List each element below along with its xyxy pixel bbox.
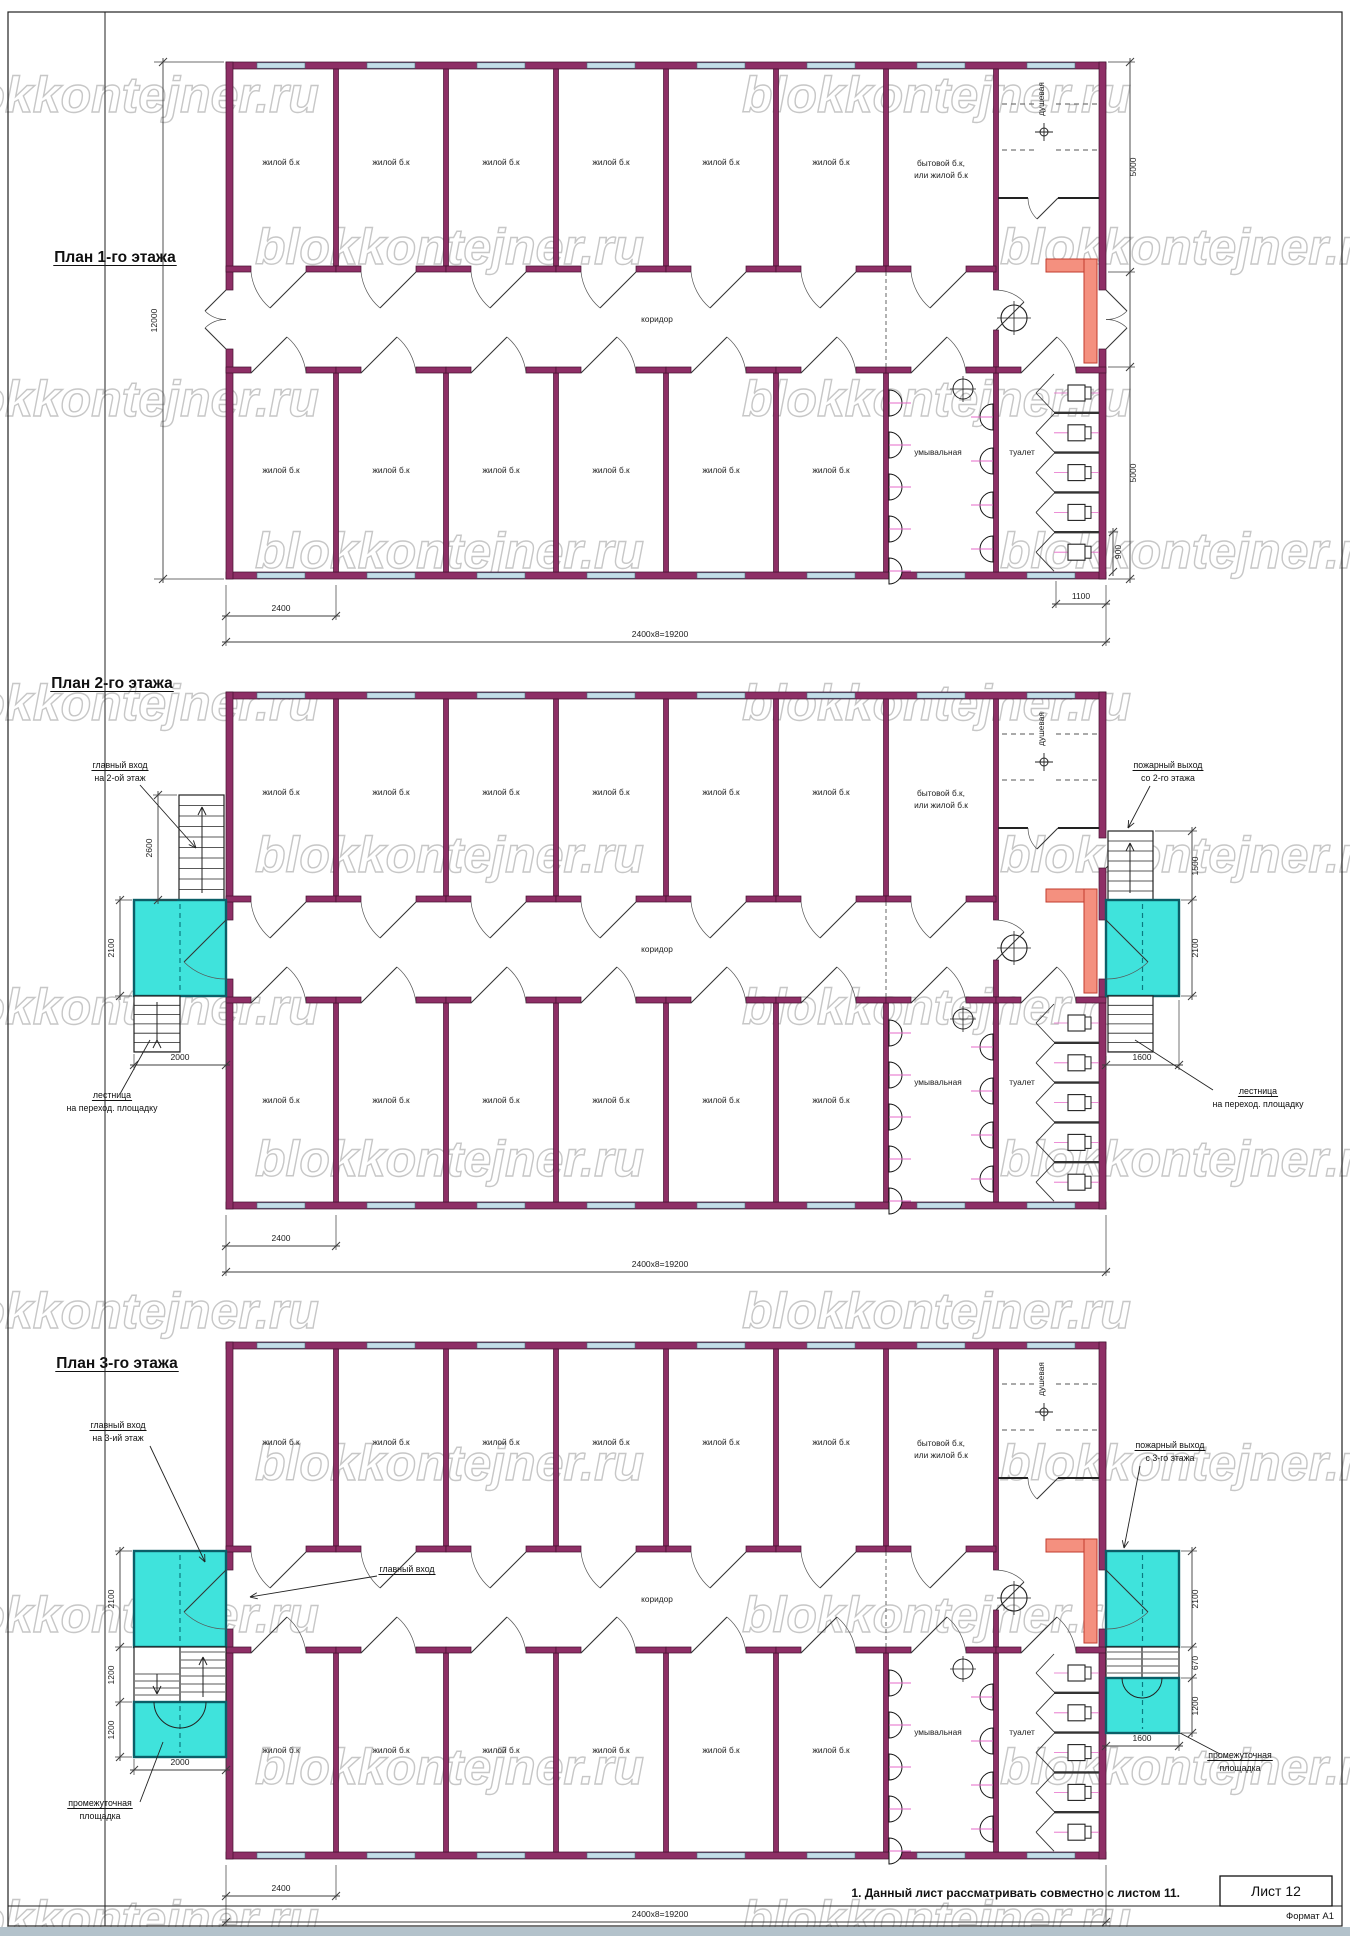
window bbox=[697, 1203, 745, 1208]
window bbox=[697, 573, 745, 578]
wall bbox=[226, 979, 233, 1209]
wall bbox=[226, 367, 251, 373]
dim-label: 2100 bbox=[1190, 938, 1200, 957]
room-label-residential: жилой б.к bbox=[482, 787, 520, 797]
wall bbox=[556, 997, 581, 1003]
toilet-bowl bbox=[1068, 1665, 1085, 1681]
wall bbox=[334, 699, 339, 896]
annotation-label: площадка bbox=[79, 1811, 120, 1821]
wall bbox=[226, 266, 251, 272]
dim-label: 2400 bbox=[272, 1233, 291, 1243]
wall bbox=[774, 1349, 779, 1546]
wall bbox=[776, 997, 801, 1003]
dim-label: 5000 bbox=[1128, 463, 1138, 482]
wall bbox=[746, 896, 776, 902]
wall bbox=[444, 373, 449, 572]
dim-label: 2400x8=19200 bbox=[632, 629, 689, 639]
wall bbox=[636, 997, 666, 1003]
wall bbox=[446, 266, 471, 272]
room-label-utility: бытовой б.к, bbox=[917, 158, 965, 168]
room-label-utility: или жилой б.к bbox=[914, 1450, 968, 1460]
room-label-residential: жилой б.к bbox=[262, 787, 300, 797]
wall bbox=[1099, 1629, 1106, 1859]
dim-label: 2600 bbox=[144, 838, 154, 857]
watermark-text: blokkontejner.ru bbox=[742, 1587, 1131, 1643]
wall bbox=[664, 373, 669, 572]
annotation-label: на 3-ий этаж bbox=[92, 1433, 143, 1443]
window bbox=[807, 1343, 855, 1348]
wall bbox=[416, 997, 446, 1003]
wall bbox=[1099, 349, 1106, 579]
window bbox=[1027, 693, 1075, 698]
wall bbox=[666, 896, 691, 902]
window bbox=[477, 1203, 525, 1208]
window bbox=[257, 1853, 305, 1858]
dim-label: 2000 bbox=[171, 1052, 190, 1062]
window bbox=[477, 63, 525, 68]
toilet-bowl bbox=[1068, 1095, 1085, 1111]
toilet-tank bbox=[1085, 1017, 1091, 1029]
wall bbox=[886, 896, 911, 902]
washroom-label: умывальная bbox=[914, 1077, 962, 1087]
wall bbox=[774, 1653, 779, 1852]
toilet-bowl bbox=[1068, 1015, 1085, 1031]
corridor-label: коридор bbox=[641, 314, 673, 324]
wall bbox=[856, 896, 886, 902]
room-label-residential: жилой б.к bbox=[372, 1745, 410, 1755]
wall bbox=[664, 1003, 669, 1202]
wall bbox=[994, 373, 999, 572]
shower-label: душевая bbox=[1036, 712, 1046, 746]
washroom-label: умывальная bbox=[914, 447, 962, 457]
toilet-tank bbox=[1085, 1136, 1091, 1148]
window bbox=[367, 693, 415, 698]
wall bbox=[444, 1653, 449, 1852]
wall bbox=[886, 367, 911, 373]
room-label-residential: жилой б.к bbox=[702, 787, 740, 797]
dim-label: 1200 bbox=[1190, 1696, 1200, 1715]
wall bbox=[776, 1546, 801, 1552]
watermark-text: blokkontejner.ru bbox=[255, 1435, 644, 1491]
window bbox=[257, 63, 305, 68]
window bbox=[697, 63, 745, 68]
sheet-number: Лист 12 bbox=[1251, 1883, 1301, 1899]
window bbox=[587, 1203, 635, 1208]
wall bbox=[776, 266, 801, 272]
toilet-bowl bbox=[1068, 1745, 1085, 1761]
heater bbox=[1084, 259, 1097, 363]
room-label-residential: жилой б.к bbox=[372, 1095, 410, 1105]
wall bbox=[856, 367, 886, 373]
wall bbox=[554, 373, 559, 572]
corridor-label: коридор bbox=[641, 944, 673, 954]
wall bbox=[776, 1647, 801, 1653]
room-label-residential: жилой б.к bbox=[482, 1437, 520, 1447]
window bbox=[477, 1853, 525, 1858]
window bbox=[587, 1343, 635, 1348]
wall bbox=[556, 367, 581, 373]
room-label-residential: жилой б.к bbox=[592, 1745, 630, 1755]
wall bbox=[446, 1647, 471, 1653]
wall bbox=[226, 1342, 1106, 1349]
wall bbox=[886, 1647, 911, 1653]
wall bbox=[1099, 692, 1106, 838]
room-label-residential: жилой б.к bbox=[812, 1437, 850, 1447]
watermark-text: blokkontejner.ru bbox=[0, 371, 319, 427]
toilet-tank bbox=[1085, 1786, 1091, 1798]
wall bbox=[416, 367, 446, 373]
watermark-text: blokkontejner.ru bbox=[255, 827, 644, 883]
wall bbox=[774, 699, 779, 896]
room-label-residential: жилой б.к bbox=[262, 157, 300, 167]
wall bbox=[336, 1546, 361, 1552]
toilet-bowl bbox=[1068, 1055, 1085, 1071]
dim-label: 900 bbox=[1113, 545, 1123, 559]
wall bbox=[856, 1647, 886, 1653]
wall bbox=[226, 349, 233, 579]
watermark-text: blokkontejner.ru bbox=[742, 675, 1131, 731]
wall bbox=[666, 266, 691, 272]
room-label-residential: жилой б.к bbox=[262, 465, 300, 475]
annotation-label: лестница bbox=[93, 1090, 131, 1100]
window bbox=[697, 1853, 745, 1858]
room-label-residential: жилой б.к bbox=[372, 787, 410, 797]
window bbox=[1027, 1203, 1075, 1208]
room-label-residential: жилой б.к bbox=[592, 1095, 630, 1105]
wall bbox=[884, 373, 889, 572]
wall bbox=[636, 266, 666, 272]
wall bbox=[556, 896, 581, 902]
window bbox=[257, 693, 305, 698]
window bbox=[367, 63, 415, 68]
window bbox=[367, 1203, 415, 1208]
wall bbox=[636, 1647, 666, 1653]
room-label-residential: жилой б.к bbox=[592, 157, 630, 167]
toilet-bowl bbox=[1068, 544, 1085, 560]
wall bbox=[446, 367, 471, 373]
drawing-sheet: blokkontejner.rublokkontejner.rublokkont… bbox=[0, 0, 1350, 1936]
wall bbox=[226, 62, 1106, 69]
window bbox=[807, 573, 855, 578]
wall bbox=[966, 1546, 996, 1552]
wall bbox=[884, 1003, 889, 1202]
toilet-bowl bbox=[1068, 1784, 1085, 1800]
wall bbox=[554, 1003, 559, 1202]
room-label-residential: жилой б.к bbox=[812, 787, 850, 797]
window bbox=[917, 1203, 965, 1208]
toilet-tank bbox=[1085, 1707, 1091, 1719]
wall bbox=[444, 69, 449, 266]
window bbox=[257, 1203, 305, 1208]
watermark-text: blokkontejner.ru bbox=[255, 1739, 644, 1795]
wall bbox=[526, 1647, 556, 1653]
toilet-tank bbox=[1085, 1057, 1091, 1069]
dim-label: 2400 bbox=[272, 1883, 291, 1893]
wall bbox=[444, 1003, 449, 1202]
toilet-bowl bbox=[1068, 1174, 1085, 1190]
room-label-residential: жилой б.к bbox=[262, 1745, 300, 1755]
floor-title: План 2-го этажа bbox=[51, 675, 173, 692]
dim-label: 2000 bbox=[171, 1757, 190, 1767]
wall bbox=[966, 367, 996, 373]
wall bbox=[526, 997, 556, 1003]
wall bbox=[306, 997, 336, 1003]
window bbox=[587, 693, 635, 698]
window bbox=[477, 693, 525, 698]
annotation-label: с 3-го этажа bbox=[1146, 1453, 1195, 1463]
wall bbox=[776, 896, 801, 902]
room-label-residential: жилой б.к bbox=[262, 1095, 300, 1105]
dims-floor-2: 24002400x8=19200 bbox=[222, 1215, 1110, 1276]
wall bbox=[334, 69, 339, 266]
wall bbox=[306, 1546, 336, 1552]
room-label-residential: жилой б.к bbox=[482, 1095, 520, 1105]
wall bbox=[774, 373, 779, 572]
wall bbox=[996, 1647, 1021, 1653]
wall bbox=[886, 1546, 911, 1552]
room-label-residential: жилой б.к bbox=[372, 465, 410, 475]
annotation-label: на переход. площадку bbox=[67, 1103, 159, 1113]
wall bbox=[994, 1653, 999, 1852]
window bbox=[257, 573, 305, 578]
toilet-tank bbox=[1085, 1747, 1091, 1759]
toilet-tank bbox=[1085, 546, 1091, 558]
wall bbox=[554, 1349, 559, 1546]
toilet-tank bbox=[1085, 1826, 1091, 1838]
wall bbox=[994, 960, 999, 997]
annotation-label: главный вход bbox=[379, 1564, 434, 1574]
annotation-label: пожарный выход bbox=[1134, 760, 1203, 770]
wall bbox=[666, 367, 691, 373]
window bbox=[587, 573, 635, 578]
wall bbox=[556, 1546, 581, 1552]
annotation-label: пожарный выход bbox=[1136, 1440, 1205, 1450]
sheet-note: 1. Данный лист рассматривать совместно с… bbox=[851, 1886, 1180, 1900]
toilet-bowl bbox=[1068, 385, 1085, 401]
wall bbox=[306, 896, 336, 902]
toilet-bowl bbox=[1068, 1134, 1085, 1150]
wall bbox=[966, 266, 996, 272]
wall bbox=[666, 1647, 691, 1653]
wall bbox=[416, 896, 446, 902]
window bbox=[477, 573, 525, 578]
wall bbox=[664, 699, 669, 896]
wall bbox=[336, 896, 361, 902]
toilet-label: туалет bbox=[1009, 1077, 1035, 1087]
window bbox=[257, 1343, 305, 1348]
wall bbox=[776, 367, 801, 373]
dim-label: 670 bbox=[1190, 1656, 1200, 1670]
wall bbox=[966, 1647, 996, 1653]
annotation-label: главный вход bbox=[92, 760, 147, 770]
toilet-bowl bbox=[1068, 1824, 1085, 1840]
wall bbox=[1099, 979, 1106, 1209]
wall bbox=[996, 997, 1021, 1003]
wall bbox=[446, 896, 471, 902]
wall bbox=[856, 997, 886, 1003]
toilet-bowl bbox=[1068, 504, 1085, 520]
room-label-residential: жилой б.к bbox=[372, 157, 410, 167]
room-label-residential: жилой б.к bbox=[702, 157, 740, 167]
wall bbox=[886, 266, 911, 272]
annotation-label: на переход. площадку bbox=[1213, 1099, 1305, 1109]
heater bbox=[1084, 1539, 1097, 1643]
wall bbox=[226, 896, 251, 902]
dim-label: 1200 bbox=[106, 1665, 116, 1684]
dim-label: 2100 bbox=[106, 1589, 116, 1608]
window bbox=[917, 693, 965, 698]
annotation-label: площадка bbox=[1219, 1763, 1260, 1773]
room-label-residential: жилой б.к bbox=[592, 1437, 630, 1447]
annotation-label: на 2-ой этаж bbox=[94, 773, 145, 783]
room-label-residential: жилой б.к bbox=[702, 1437, 740, 1447]
wall bbox=[526, 896, 556, 902]
wall bbox=[526, 266, 556, 272]
window bbox=[807, 63, 855, 68]
watermark-text: blokkontejner.ru bbox=[742, 67, 1131, 123]
wall bbox=[966, 896, 996, 902]
wall bbox=[664, 1653, 669, 1852]
wall bbox=[306, 367, 336, 373]
wall bbox=[554, 69, 559, 266]
toilet-bowl bbox=[1068, 465, 1085, 481]
room-label-residential: жилой б.к bbox=[592, 465, 630, 475]
wall bbox=[226, 692, 1106, 699]
wall bbox=[664, 69, 669, 266]
room-label-utility: или жилой б.к bbox=[914, 170, 968, 180]
wall bbox=[884, 1653, 889, 1852]
room-label-residential: жилой б.к bbox=[262, 1437, 300, 1447]
wall bbox=[774, 69, 779, 266]
room-label-residential: жилой б.к bbox=[702, 465, 740, 475]
dim-label: 2400x8=19200 bbox=[632, 1909, 689, 1919]
wall bbox=[636, 1546, 666, 1552]
window bbox=[367, 1343, 415, 1348]
toilet-tank bbox=[1085, 1097, 1091, 1109]
wall bbox=[1099, 62, 1106, 290]
wall bbox=[226, 1852, 1106, 1859]
wall bbox=[994, 330, 999, 367]
shower-label: душевая bbox=[1036, 82, 1046, 116]
wall bbox=[226, 997, 251, 1003]
window bbox=[807, 1853, 855, 1858]
room-label-residential: жилой б.к bbox=[702, 1095, 740, 1105]
room-label-residential: жилой б.к bbox=[702, 1745, 740, 1755]
watermark-text: blokkontejner.ru bbox=[255, 523, 644, 579]
room-label-utility: бытовой б.к, bbox=[917, 1438, 965, 1448]
window bbox=[1027, 573, 1075, 578]
wall bbox=[666, 1546, 691, 1552]
wall bbox=[1076, 367, 1106, 373]
wall bbox=[886, 997, 911, 1003]
room-label-residential: жилой б.к bbox=[482, 157, 520, 167]
dim-label: 2400 bbox=[272, 603, 291, 613]
wall bbox=[884, 69, 889, 266]
annotation-label: со 2-го этажа bbox=[1141, 773, 1195, 783]
wall bbox=[1076, 1647, 1106, 1653]
watermark-text: blokkontejner.ru bbox=[0, 1283, 319, 1339]
room-label-residential: жилой б.к bbox=[812, 1095, 850, 1105]
wall bbox=[336, 997, 361, 1003]
wall bbox=[336, 1647, 361, 1653]
wall bbox=[336, 367, 361, 373]
window bbox=[367, 573, 415, 578]
watermark-text: blokkontejner.ru bbox=[742, 1283, 1131, 1339]
wall bbox=[996, 367, 1021, 373]
dim-label: 1600 bbox=[1133, 1052, 1152, 1062]
dim-label: 1100 bbox=[1072, 591, 1091, 601]
window bbox=[917, 573, 965, 578]
toilet-tank bbox=[1085, 1667, 1091, 1679]
wall bbox=[966, 997, 996, 1003]
dim-label: 2400x8=19200 bbox=[632, 1259, 689, 1269]
toilet-tank bbox=[1085, 506, 1091, 518]
washroom-label: умывальная bbox=[914, 1727, 962, 1737]
wall bbox=[306, 266, 336, 272]
room-label-residential: жилой б.к bbox=[812, 465, 850, 475]
wall bbox=[416, 1647, 446, 1653]
wall bbox=[636, 367, 666, 373]
watermark-text: blokkontejner.ru bbox=[0, 67, 319, 123]
wall bbox=[664, 1349, 669, 1546]
wall bbox=[746, 1647, 776, 1653]
window bbox=[1027, 1343, 1075, 1348]
wall bbox=[884, 699, 889, 896]
window bbox=[807, 693, 855, 698]
wall bbox=[334, 1349, 339, 1546]
dim-label: 1600 bbox=[1133, 1733, 1152, 1743]
toilet-tank bbox=[1085, 427, 1091, 439]
room-label-residential: жилой б.к bbox=[812, 1745, 850, 1755]
toilet-label: туалет bbox=[1009, 1727, 1035, 1737]
window bbox=[917, 63, 965, 68]
wall bbox=[334, 1003, 339, 1202]
wall bbox=[336, 266, 361, 272]
wall bbox=[994, 1610, 999, 1647]
wall bbox=[1099, 1342, 1106, 1570]
dim-label: 2100 bbox=[1190, 1589, 1200, 1608]
wall bbox=[994, 1349, 999, 1570]
wall bbox=[526, 1546, 556, 1552]
dim-label: 12000 bbox=[149, 308, 159, 332]
wall bbox=[746, 367, 776, 373]
toilet-tank bbox=[1085, 1176, 1091, 1188]
watermark-text: blokkontejner.ru bbox=[1000, 827, 1350, 883]
dims-floor-1: 24002400x8=19200 bbox=[222, 585, 1110, 646]
dim-label: 1500 bbox=[1190, 856, 1200, 875]
window bbox=[697, 1343, 745, 1348]
floor-plan-svg: blokkontejner.rublokkontejner.rublokkont… bbox=[0, 0, 1350, 1936]
wall bbox=[554, 1653, 559, 1852]
wall bbox=[774, 1003, 779, 1202]
watermark-text: blokkontejner.ru bbox=[1000, 1739, 1350, 1795]
wall bbox=[226, 1546, 251, 1552]
wall bbox=[446, 997, 471, 1003]
window bbox=[587, 1853, 635, 1858]
wall bbox=[226, 572, 1106, 579]
wall bbox=[636, 896, 666, 902]
toilet-tank bbox=[1085, 467, 1091, 479]
wall bbox=[444, 1349, 449, 1546]
watermark-text: blokkontejner.ru bbox=[1000, 523, 1350, 579]
wall bbox=[666, 997, 691, 1003]
wall bbox=[306, 1647, 336, 1653]
wall bbox=[444, 699, 449, 896]
room-label-residential: жилой б.к bbox=[482, 465, 520, 475]
window bbox=[587, 63, 635, 68]
annotation-label: промежуточная bbox=[1208, 1750, 1272, 1760]
watermark-text: blokkontejner.ru bbox=[255, 1131, 644, 1187]
